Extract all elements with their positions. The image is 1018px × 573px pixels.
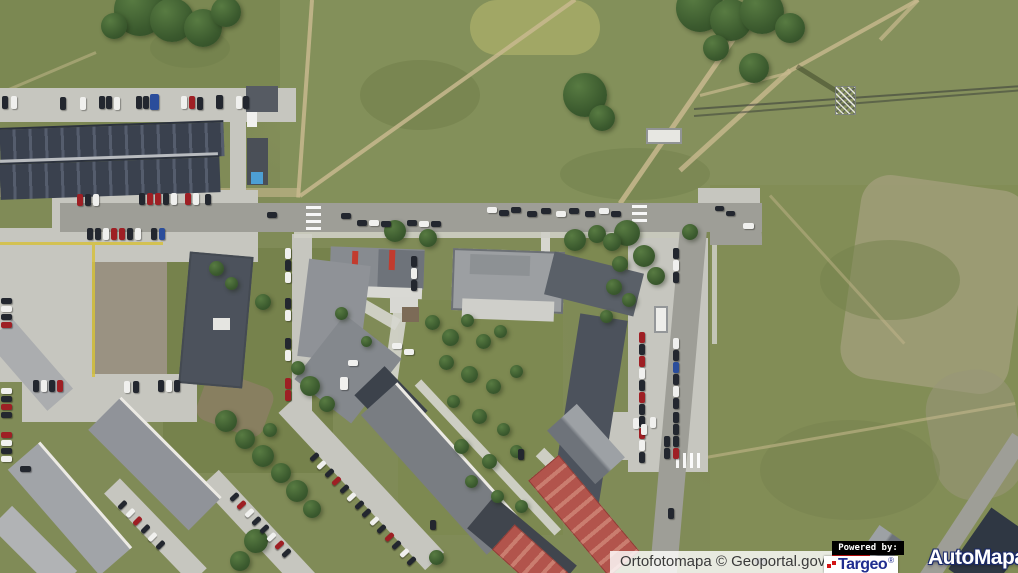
tree [425,315,440,330]
car [285,350,291,361]
car [41,380,47,392]
car [369,220,379,226]
tree [589,105,615,131]
attribution-text: Ortofotomapa © Geoportal.gov.pl [620,553,840,570]
car [664,436,670,447]
car [285,248,291,259]
car [639,404,645,415]
car [599,208,609,214]
car [411,268,417,279]
car [174,380,180,392]
car [556,211,566,217]
targeo-logo[interactable]: Targeo ® [824,556,898,573]
tree [515,500,528,513]
car [181,96,187,109]
car [99,96,105,109]
car [243,96,249,109]
tree [600,310,613,323]
car [406,556,417,566]
tree [775,13,805,43]
car [189,96,195,109]
tree [497,423,510,436]
car [381,221,391,227]
car [114,97,120,110]
car [392,343,402,349]
tree [564,229,586,251]
building-wall-band [462,298,555,321]
map-attribution: Ortofotomapa © Geoportal.gov.pl [610,551,850,573]
car [664,448,670,459]
car [673,260,679,271]
car [85,194,91,206]
tree [439,355,454,370]
car [1,432,12,438]
car [1,314,12,320]
car [151,228,157,240]
terrain-patch [820,240,960,320]
car [369,516,380,526]
tree [291,361,305,375]
car [1,404,12,410]
car [80,97,86,110]
targeo-icon [827,558,837,571]
car [673,412,679,423]
tree [739,53,769,83]
tree [454,439,469,454]
car [285,272,291,283]
pavement [230,118,246,194]
car [49,380,55,392]
tree [476,334,491,349]
car [119,228,125,240]
car [639,332,645,343]
car [135,228,141,240]
car [715,206,724,211]
white-truck [654,306,668,333]
tree [682,224,698,240]
car [411,256,417,267]
crosswalk [306,206,321,232]
tree [244,529,268,553]
tree [606,279,622,295]
tree [472,409,487,424]
car [150,94,159,110]
terrain-patch [560,148,710,200]
tree [461,314,474,327]
car [1,298,12,304]
car [341,213,351,219]
tree [263,423,277,437]
car [171,193,177,205]
car [527,211,537,217]
car [216,95,223,109]
school-north-wing [377,249,424,289]
car [158,380,164,392]
car [185,193,191,205]
car [33,380,39,392]
car [285,310,291,321]
targeo-wordmark: Targeo [838,556,887,573]
car [639,356,645,367]
car [673,398,679,409]
hut [402,307,419,322]
car [743,223,754,229]
map-viewport: Ortofotomapa © Geoportal.gov.pl Powered … [0,0,1018,573]
tree [429,550,444,565]
fence-line [92,245,95,377]
car [569,208,579,214]
road [60,203,762,232]
car [1,448,12,454]
tree [494,325,507,338]
car [673,338,679,349]
car [673,248,679,259]
car [77,194,83,206]
car [143,96,149,109]
car [20,466,31,472]
automapa-wordmark: AutoMapa [928,546,1018,569]
tree [215,410,237,432]
tree [622,293,636,307]
tree [235,429,255,449]
car [419,221,429,227]
car [431,221,441,227]
car [673,424,679,435]
tree [230,551,250,571]
car [205,194,211,205]
car [673,436,679,447]
car [285,298,291,309]
tree [491,490,504,503]
car [518,449,524,460]
car [11,96,17,109]
car [1,388,12,394]
car [639,392,645,403]
tree [271,463,291,483]
car [103,228,109,240]
powered-by-label: Powered by: [832,541,904,555]
blue-container [251,172,263,184]
car [60,97,66,110]
car [236,96,242,109]
flat-roof-detail [470,254,531,276]
white-structure [646,128,682,144]
tree [225,277,238,290]
car [339,484,350,494]
car [348,360,358,366]
tree [255,294,271,310]
car [285,338,291,349]
car [673,272,679,283]
car [340,377,348,390]
aerial-map-canvas[interactable] [0,0,1018,573]
tree [647,267,665,285]
car [487,207,497,213]
car [1,396,12,402]
car [1,322,12,328]
terrain-patch [95,250,167,378]
car [639,440,645,451]
car [163,193,169,205]
car [95,228,101,240]
car [124,381,130,393]
car [673,374,679,385]
car [159,228,165,240]
tree [209,261,224,276]
car [639,380,645,391]
terrain-patch [360,60,480,130]
garage-block [246,86,278,112]
car [139,193,145,205]
car [166,380,172,392]
car [357,220,367,226]
tree [486,379,501,394]
car [376,524,387,534]
tree [461,366,478,383]
car [673,362,679,373]
tree [465,475,478,488]
tree [300,376,320,396]
car [346,492,357,502]
car [2,96,8,109]
car [87,228,93,240]
tree [252,445,274,467]
car [1,440,12,446]
car [147,193,153,205]
car [641,424,647,435]
car [633,418,639,429]
car [111,228,117,240]
automapa-logo[interactable]: AutoMapa® [928,546,1018,570]
tree [101,13,127,39]
car [499,210,509,216]
car [155,193,161,205]
tree [286,480,308,502]
car [430,520,436,530]
car [611,211,621,217]
terrain-patch [760,420,940,520]
car [673,448,679,459]
car [726,211,735,216]
car [639,452,645,463]
tree [319,396,335,412]
car [127,228,133,240]
car [354,500,365,510]
tree [510,365,523,378]
car [136,96,142,109]
red-chimney [389,250,396,270]
car [668,508,674,519]
car [285,378,291,389]
tree [303,500,321,518]
car [650,417,656,428]
car [391,540,402,550]
fence-line [0,242,163,245]
car [93,194,99,206]
rooftop-structure [213,318,230,330]
car [673,386,679,397]
car [673,350,679,361]
car [411,280,417,291]
car [285,260,291,271]
targeo-registered-mark: ® [888,556,894,566]
car [197,97,203,110]
car [639,368,645,379]
car [404,349,414,355]
car [1,456,12,462]
car [639,344,645,355]
car [133,381,139,393]
car [511,207,521,213]
car [1,306,12,312]
tree [603,233,621,251]
white-van [247,112,257,127]
tree [419,229,437,247]
car [1,412,12,418]
tree [442,329,459,346]
car [267,212,277,218]
car [285,390,291,401]
crosswalk [676,453,702,468]
power-pylon [835,86,856,115]
tree [633,245,655,267]
car [193,193,199,205]
car [106,96,112,109]
car [541,208,551,214]
car [361,508,372,518]
tree [482,454,497,469]
car [331,476,342,486]
tree [703,35,729,61]
tree [447,395,460,408]
tree [361,336,372,347]
car [407,220,417,226]
tree [335,307,348,320]
tree [612,256,628,272]
car [57,380,63,392]
car [585,211,595,217]
